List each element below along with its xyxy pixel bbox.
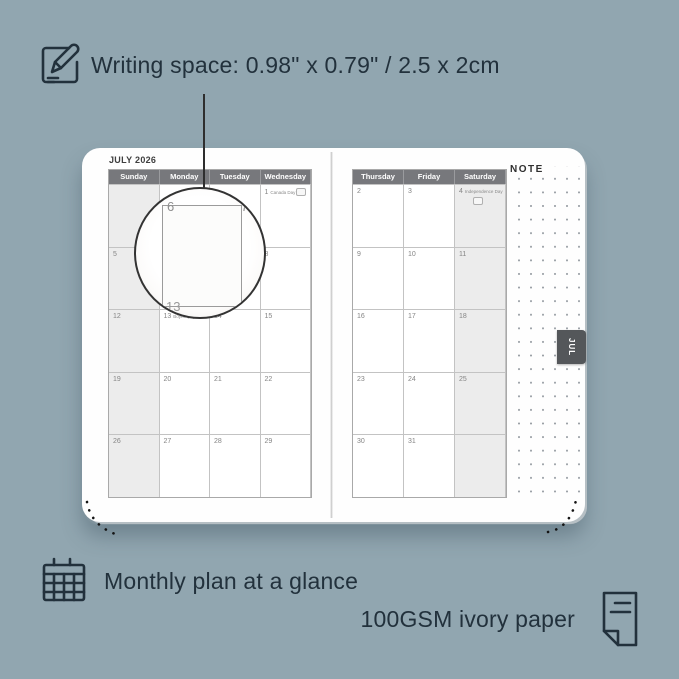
magnified-day: 13 <box>166 299 180 314</box>
day-number: 9 <box>357 251 361 259</box>
calendar-cell: 8 <box>261 247 312 310</box>
calendar-cell: 28 <box>210 434 261 497</box>
page-spine <box>330 152 333 518</box>
right-calendar-grid: ThursdayFridaySaturday234Independence Da… <box>352 169 507 498</box>
writing-space-label: Writing space: 0.98" x 0.79" / 2.5 x 2cm <box>91 52 500 79</box>
day-number: 16 <box>357 313 365 321</box>
calendar-cell: 9 <box>353 247 404 310</box>
calendar-cell: 19 <box>109 372 160 435</box>
day-header: Thursday <box>353 170 404 184</box>
calendar-cell: 30 <box>353 434 404 497</box>
product-image: Writing space: 0.98" x 0.79" / 2.5 x 2cm… <box>0 0 679 679</box>
day-number: 29 <box>265 438 273 446</box>
day-number: 18 <box>459 313 467 321</box>
calendar-cell: 2 <box>353 184 404 247</box>
writing-space-box <box>162 205 242 307</box>
day-number: 2 <box>357 188 361 196</box>
calendar-cell: 3 <box>404 184 455 247</box>
holiday-label: Independence Day <box>465 189 503 194</box>
calendar-cell: 12 <box>109 309 160 372</box>
calendar-cell: 4Independence Day <box>455 184 506 247</box>
calendar-cell: 23 <box>353 372 404 435</box>
day-header: Tuesday <box>210 170 261 184</box>
callout-line <box>203 94 205 189</box>
stitching-dots-left <box>78 488 130 544</box>
day-number: 3 <box>408 188 412 196</box>
day-number: 25 <box>459 376 467 384</box>
calendar-cell: 27 <box>160 434 211 497</box>
day-number: 19 <box>113 376 121 384</box>
month-tab: JUL <box>557 330 586 364</box>
day-header: Friday <box>404 170 455 184</box>
flag-icon <box>296 188 306 196</box>
magnified-day: 7 <box>241 199 248 214</box>
calendar-cell: 22 <box>261 372 312 435</box>
day-number: 30 <box>357 438 365 446</box>
note-label: NOTE <box>510 164 547 175</box>
day-header: Sunday <box>109 170 160 184</box>
day-number: 20 <box>164 376 172 384</box>
calendar-cell: 1Canada Day <box>261 184 312 247</box>
day-header: Saturday <box>455 170 506 184</box>
calendar-cell: 10 <box>404 247 455 310</box>
calendar-cell: 20 <box>160 372 211 435</box>
day-number: 31 <box>408 438 416 446</box>
calendar-cell: 11 <box>455 247 506 310</box>
calendar-cell: 24 <box>404 372 455 435</box>
day-number: 21 <box>214 376 222 384</box>
day-header: Wednesday <box>261 170 312 184</box>
flag-icon <box>473 197 483 205</box>
calendar-cell: 16 <box>353 309 404 372</box>
calendar-cell: 25 <box>455 372 506 435</box>
day-number: 26 <box>113 438 121 446</box>
calendar-icon <box>40 556 88 604</box>
day-number: 17 <box>408 313 416 321</box>
day-number: 13 <box>164 313 172 321</box>
day-number: 11 <box>459 251 466 259</box>
day-number: 28 <box>214 438 222 446</box>
day-number: 23 <box>357 376 365 384</box>
magnifier-circle: 6 7 13 <box>134 187 266 319</box>
calendar-cell: 17 <box>404 309 455 372</box>
day-number: 5 <box>113 251 117 259</box>
day-number: 12 <box>113 313 121 321</box>
day-number: 22 <box>265 376 273 384</box>
calendar-cell: 15 <box>261 309 312 372</box>
calendar-cell <box>455 434 506 497</box>
day-number: 15 <box>265 313 273 321</box>
writing-pencil-icon <box>38 38 84 86</box>
calendar-cell: 21 <box>210 372 261 435</box>
day-number: 24 <box>408 376 416 384</box>
month-title: JULY 2026 <box>109 155 156 165</box>
day-number: 1 <box>265 189 269 197</box>
paper-sheet-icon <box>598 590 642 648</box>
stitching-dots-right <box>540 484 592 540</box>
paper-label: 100GSM ivory paper <box>360 606 575 633</box>
day-number: 27 <box>164 438 172 446</box>
monthly-plan-label: Monthly plan at a glance <box>104 568 358 595</box>
holiday-label: Canada Day <box>270 190 295 195</box>
calendar-cell: 18 <box>455 309 506 372</box>
calendar-cell: 14 <box>210 309 261 372</box>
day-number: 4 <box>459 188 463 196</box>
calendar-cell: 29 <box>261 434 312 497</box>
magnified-day: 6 <box>167 199 174 214</box>
calendar-cell: 31 <box>404 434 455 497</box>
day-number: 10 <box>408 251 416 259</box>
